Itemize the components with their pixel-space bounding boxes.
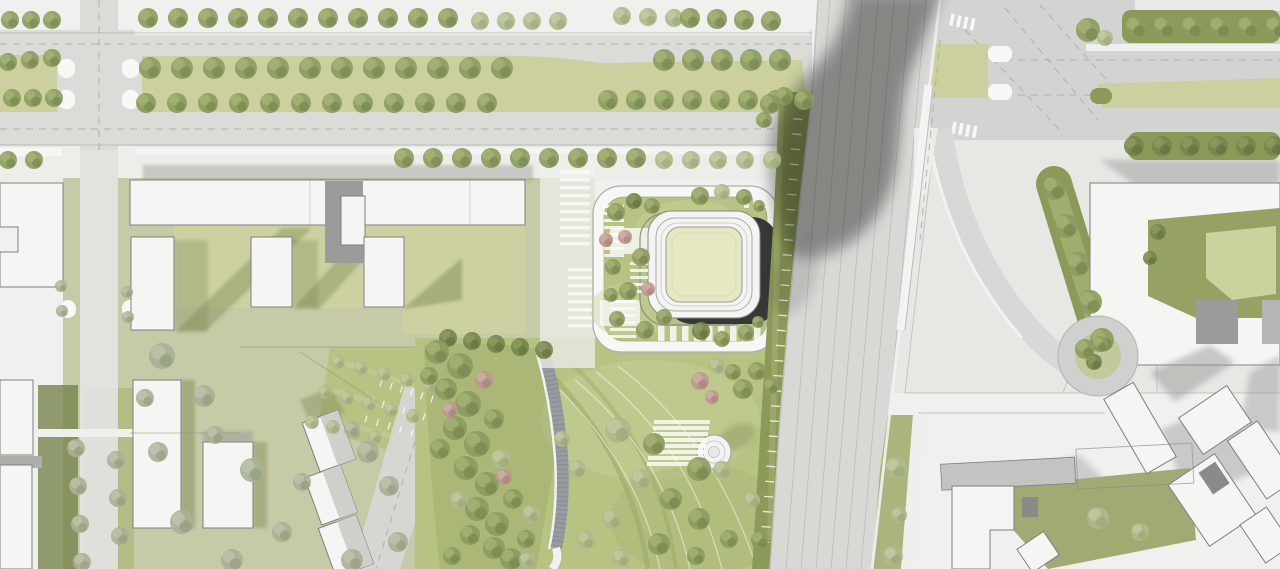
plan-shape [762,119,770,127]
plan-shape [6,159,15,168]
site-plan-stage [0,0,1280,569]
tree [357,441,379,463]
plan-shape [386,17,396,27]
tree [497,12,515,30]
plan-shape [769,20,779,30]
tree [1066,252,1090,276]
plan-shape [750,499,758,507]
plan-shape [894,466,905,477]
plan-shape [438,448,448,458]
tree [631,469,651,489]
plan-shape [744,332,752,340]
tree [477,93,497,113]
plan-shape [547,157,557,167]
paver-bar [568,324,592,328]
row-building [0,465,32,569]
tree [612,549,630,567]
plan-shape [639,256,648,265]
plan-shape [230,558,241,569]
plan-shape [511,498,521,508]
east-lawn [930,44,988,98]
tree [891,507,907,523]
tree [400,373,414,387]
plan-shape [280,531,290,541]
tree [692,322,710,340]
plan-shape [374,436,381,443]
tree [454,456,478,480]
plan-shape [494,343,503,352]
tree [465,497,489,521]
plan-shape [475,507,487,519]
tree [705,390,719,404]
plan-shape [1132,145,1142,155]
plan-shape [662,159,671,168]
plan-shape [308,66,319,77]
plan-shape [212,66,223,77]
plan-shape [652,442,663,453]
tree [644,198,660,214]
plan-shape [31,97,40,106]
plan-shape [126,291,132,297]
tree [682,49,704,71]
tree [618,230,632,244]
plan-shape [720,469,729,478]
plan-shape [324,391,331,398]
plan-shape [634,157,644,167]
tree [452,148,472,168]
plan-shape [50,19,59,28]
plan-shape [720,58,731,69]
wing-building [251,237,292,307]
plan-shape [1138,531,1147,540]
tree [464,431,490,457]
plan-shape [769,385,777,393]
plan-shape [387,485,397,495]
tree [1076,18,1100,42]
plan-shape [406,379,413,386]
plan-shape [311,421,318,428]
plan-shape [435,350,447,362]
tree [639,8,657,26]
plan-shape [1188,145,1198,155]
tree [459,57,481,79]
plan-shape [300,481,309,490]
plan-shape [457,499,466,508]
plan-shape [624,236,631,243]
tree [736,151,754,169]
plan-shape [626,290,635,299]
site-plan-canvas [0,0,1280,569]
tree [626,148,646,168]
plan-shape [360,367,367,374]
tree [511,338,529,356]
tree [24,89,42,107]
plan-shape [383,373,390,380]
plan-shape [148,66,159,77]
plan-shape [619,557,628,566]
tree [609,311,625,327]
tree [626,90,646,110]
plan-shape [1262,300,1280,344]
tree [713,461,731,479]
tree [794,90,814,110]
paver-bar [560,178,590,182]
plan-shape [502,476,510,484]
plan-shape [474,442,487,455]
tree [331,57,353,79]
paver-bar [730,326,737,341]
plan-shape [268,102,278,112]
tree [55,280,67,292]
tree [682,151,700,169]
paver-bar [682,326,689,341]
plan-shape [1149,257,1156,264]
tree [193,385,215,407]
plan-shape [176,17,186,27]
tree [740,49,762,71]
tree [1143,251,1157,265]
plan-shape [174,240,208,330]
paver-bar [630,276,648,279]
plan-shape [431,157,441,167]
tree [654,90,674,110]
plan-shape [758,539,767,548]
plan-shape [1244,145,1254,155]
tree [636,321,654,339]
plan-shape [1064,224,1076,236]
tree [1097,30,1113,46]
plan-shape [715,18,725,28]
tree [228,8,248,28]
plan-shape [634,99,644,109]
plan-shape [326,17,336,27]
plan-shape [392,102,402,112]
tree [394,148,414,168]
tree [568,460,586,478]
plan-shape [495,522,507,534]
tree [756,112,772,128]
tree [3,89,21,107]
plan-shape [576,157,586,167]
traffic-island [122,90,139,109]
row-building [0,380,33,455]
tree [604,288,618,302]
tree [258,8,278,28]
traffic-island [58,59,75,78]
plan-shape [482,379,491,388]
plan-shape [504,20,513,29]
tree [267,57,289,79]
tree [122,311,134,323]
tree [539,148,559,168]
tree [379,476,399,496]
tree [388,532,408,552]
tree [430,439,450,459]
tower-building [640,211,778,325]
tick-mark [764,496,773,497]
plan-shape [470,340,479,349]
tree [425,340,449,364]
plan-shape [332,426,339,433]
plan-shape [499,458,509,468]
tree [67,439,85,457]
plan-shape [1196,300,1238,344]
tree [340,391,354,405]
plan-shape [778,58,789,69]
plan-shape [485,102,495,112]
plan-shape [453,426,465,438]
plan-shape [646,16,655,25]
plan-shape [556,20,565,29]
tick-mark [766,466,775,467]
plan-shape [202,394,213,405]
tree [503,489,523,509]
tree [688,508,710,530]
plan-shape [465,402,478,415]
plan-shape [52,97,61,106]
tree [69,477,87,495]
plan-shape [694,555,703,564]
plan-shape [698,195,707,204]
tree [510,148,530,168]
plan-shape [690,99,700,109]
tree [1152,136,1172,156]
tree [481,148,501,168]
plan-shape [340,66,351,77]
paver-bar [568,292,592,296]
tree [598,90,618,110]
tree [318,385,332,399]
plan-shape [492,418,502,428]
plan-shape [741,388,751,398]
plan-shape [743,159,752,168]
tree [198,93,218,113]
plan-shape [346,397,353,404]
tree [752,316,764,328]
tree [293,473,311,491]
tree [362,397,376,411]
tree [656,309,672,325]
plan-shape [610,294,617,301]
plan-shape [429,385,436,392]
row-building [203,442,253,528]
paver-bar [604,254,624,257]
tick-mark [765,481,774,482]
plan-shape [1098,343,1106,351]
paver-bar [568,316,592,320]
tree [363,57,385,79]
paver-bar [610,328,636,331]
tree [446,93,466,113]
plan-shape [444,387,455,398]
tick-mark [777,330,786,331]
tree [148,442,168,462]
tree [769,49,791,71]
plan-shape [460,157,470,167]
tree [487,335,505,353]
plan-shape [782,95,791,104]
plan-shape [412,415,419,422]
tree [734,10,754,30]
plan-shape [446,17,456,27]
tree [443,547,461,565]
tree [322,93,342,113]
paver-bar [560,226,590,230]
tree [354,361,368,375]
tree [1181,16,1203,38]
plan-shape [181,380,195,528]
plan-shape [560,438,568,446]
plan-shape [236,17,246,27]
plan-shape [60,285,66,291]
plan-shape [175,102,185,112]
plan-shape [423,102,433,112]
plan-shape [657,542,668,553]
plan-shape [144,102,154,112]
paver-bar [560,210,590,214]
paver-bar [560,186,590,190]
corner-building [0,183,63,287]
tree [632,248,650,266]
plan-shape [768,103,778,113]
tree [260,93,280,113]
plan-shape [356,17,366,27]
plan-shape [662,58,673,69]
plan-shape [489,157,499,167]
paver-bar [568,276,592,280]
tree [203,57,225,79]
tree [1124,136,1144,156]
paver-bar [754,326,761,341]
plan-shape [1096,516,1107,527]
plan-shape [689,159,698,168]
plan-shape [757,321,763,327]
plan-shape [691,58,702,69]
tree [443,416,467,440]
paver-bar [604,247,624,250]
tree [1086,354,1102,370]
tree [326,420,340,434]
tree [709,151,727,169]
plan-shape [29,19,38,28]
plan-shape [709,447,720,458]
tree [171,57,193,79]
tick-mark [769,436,778,437]
paver-bar [568,300,592,304]
plan-shape [720,338,728,346]
plan-shape [610,518,620,528]
tree [463,332,481,350]
plan-shape [525,559,533,567]
plan-shape [457,364,470,377]
plan-shape [292,240,318,307]
tree [229,93,249,113]
wing-building [364,237,404,307]
plan-shape [988,84,1012,100]
tree [753,200,765,212]
plan-shape [518,346,527,355]
tree [318,8,338,28]
plan-shape [1022,497,1038,517]
tree [331,355,345,369]
plan-shape [529,513,538,522]
tree [660,488,682,510]
tree [682,90,702,110]
plan-shape [530,20,539,29]
paver-bar [560,218,590,222]
plan-shape [605,239,612,246]
tree [170,510,194,534]
tree [523,12,541,30]
tower-courtyard [666,227,742,302]
tree [235,57,257,79]
tree [471,12,489,30]
tree [613,7,631,25]
paver-bar [654,420,710,424]
tree [395,57,417,79]
paver-bar [568,284,592,288]
plan-shape [518,157,528,167]
plan-shape [615,428,628,441]
tree [535,341,553,359]
plan-shape [509,557,520,568]
tree [691,372,709,390]
tree [447,353,473,379]
tree [423,148,443,168]
plan-shape [135,30,810,35]
plan-shape [632,200,640,208]
plan-shape [464,466,476,478]
tree [450,491,468,509]
plan-shape [688,17,698,27]
tree [56,305,68,317]
tree [751,531,769,549]
tree [167,93,187,113]
plan-shape [746,99,756,109]
plan-shape [1135,0,1280,11]
tree [763,151,781,169]
tree [517,530,535,548]
plan-shape [727,538,736,547]
tree [406,409,420,423]
plan-shape [672,17,681,26]
plan-shape [436,66,447,77]
plan-shape [213,434,222,443]
tree [22,11,40,29]
tree [427,57,449,79]
plan-shape [1103,37,1111,45]
paver-bar [610,307,636,310]
tree [733,379,753,399]
tree [687,457,711,481]
plan-shape [662,99,672,109]
tree [107,451,125,469]
paver-bar [568,308,592,312]
tree [710,90,730,110]
tree [149,343,175,369]
tree [653,49,675,71]
plan-shape [742,196,750,204]
tree [415,93,435,113]
plan-shape [61,310,67,316]
plan-shape [650,205,658,213]
tree [605,259,621,275]
tree [291,93,311,113]
paver-bar [610,335,636,338]
plan-shape [368,403,375,410]
plan-shape [32,159,41,168]
tick-mark [770,421,779,422]
